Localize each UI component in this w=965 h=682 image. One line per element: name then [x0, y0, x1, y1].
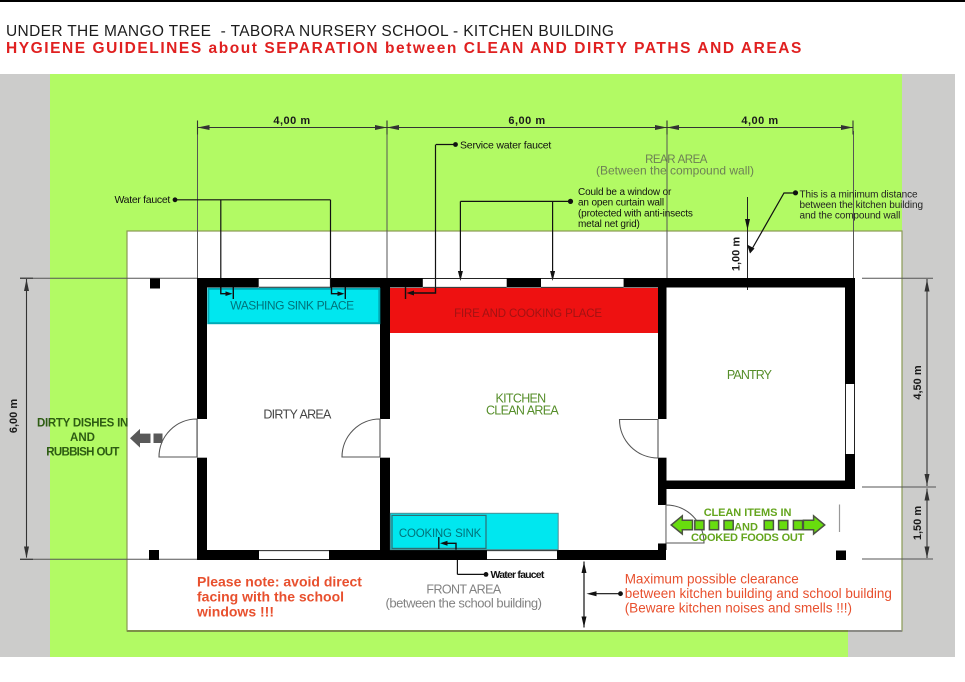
svg-text:1,00 m: 1,00 m: [731, 237, 743, 271]
svg-text:1,50 m: 1,50 m: [912, 506, 924, 540]
svg-text:6,00 m: 6,00 m: [508, 115, 545, 127]
svg-text:This is a minimum distance: This is a minimum distance: [800, 190, 919, 201]
svg-text:UNDER THE MANGO TREE - TABORA: UNDER THE MANGO TREE - TABORA NURSERY SC…: [6, 23, 614, 40]
svg-text:(between the school building): (between the school building): [385, 596, 541, 611]
svg-text:Please note: avoid direct: Please note: avoid direct: [197, 574, 362, 590]
svg-text:COOKED FOODS OUT: COOKED FOODS OUT: [691, 532, 805, 544]
svg-text:FIRE AND COOKING PLACE: FIRE AND COOKING PLACE: [454, 308, 602, 320]
svg-text:metal net grid): metal net grid): [578, 219, 640, 230]
svg-text:HYGIENE GUIDELINES about SEPAR: HYGIENE GUIDELINES about SEPARATION betw…: [6, 40, 803, 57]
svg-text:facing with the school: facing with the school: [197, 589, 344, 605]
svg-text:Could be a window or: Could be a window or: [578, 187, 672, 198]
svg-text:(Between the compound wall): (Between the compound wall): [596, 164, 754, 178]
svg-text:RUBBISH OUT: RUBBISH OUT: [46, 447, 119, 459]
svg-text:windows !!!: windows !!!: [196, 604, 274, 620]
svg-text:CLEAN ITEMS IN: CLEAN ITEMS IN: [704, 507, 792, 519]
svg-text:DIRTY DISHES IN: DIRTY DISHES IN: [37, 418, 128, 430]
svg-text:CLEAN AREA: CLEAN AREA: [486, 404, 559, 418]
svg-text:WASHING SINK PLACE: WASHING SINK PLACE: [230, 299, 354, 313]
svg-text:DIRTY AREA: DIRTY AREA: [263, 408, 332, 422]
svg-text:4,50 m: 4,50 m: [912, 365, 924, 399]
svg-text:Maximum possible clearance: Maximum possible clearance: [625, 572, 799, 587]
svg-text:COOKING SINK: COOKING SINK: [399, 528, 482, 540]
svg-text:and the compound wall: and the compound wall: [800, 211, 901, 222]
svg-text:AND: AND: [70, 432, 95, 444]
svg-text:4,00 m: 4,00 m: [741, 115, 778, 127]
svg-text:an open curtain wall: an open curtain wall: [578, 198, 664, 209]
svg-text:between kitchen building and s: between kitchen building and school buil…: [625, 586, 892, 601]
svg-text:Service water faucet: Service water faucet: [460, 140, 551, 152]
svg-text:6,00 m: 6,00 m: [8, 399, 20, 433]
svg-text:PANTRY: PANTRY: [727, 368, 773, 382]
svg-text:4,00 m: 4,00 m: [273, 115, 310, 127]
svg-text:Water faucet: Water faucet: [114, 194, 170, 206]
svg-text:FRONT AREA: FRONT AREA: [426, 583, 501, 597]
svg-text:(Beware kitchen noises and sme: (Beware kitchen noises and smells !!!): [625, 601, 852, 616]
svg-text:Water faucet: Water faucet: [491, 569, 545, 581]
svg-text:(protected with anti-insects: (protected with anti-insects: [578, 208, 693, 219]
svg-text:between the kitchen building: between the kitchen building: [800, 200, 923, 211]
